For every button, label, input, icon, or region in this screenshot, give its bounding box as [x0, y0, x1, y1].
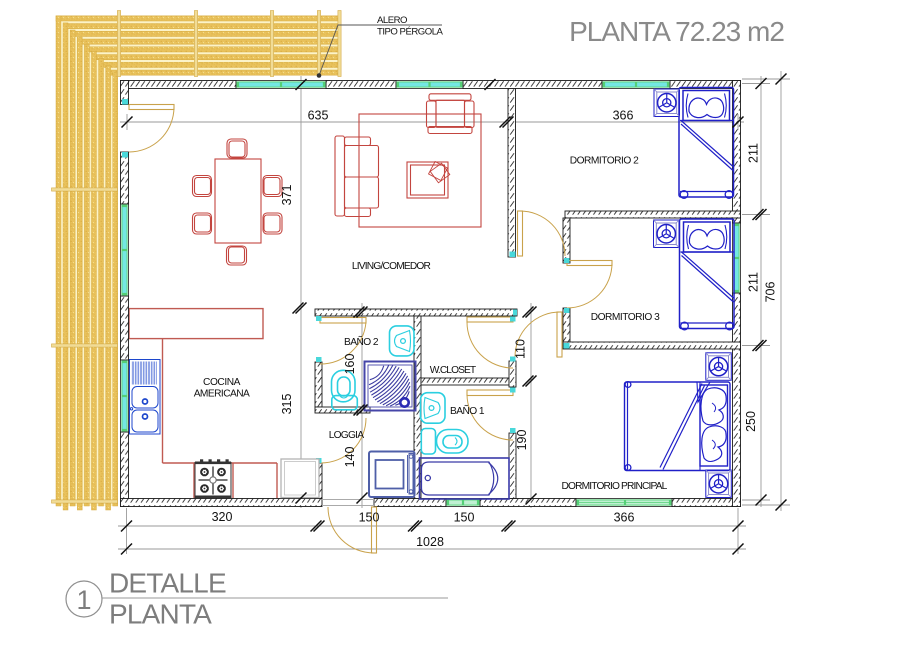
svg-text:LOGGIA: LOGGIA: [329, 430, 365, 441]
svg-text:150: 150: [454, 511, 475, 525]
svg-text:635: 635: [308, 109, 329, 123]
svg-text:706: 706: [764, 282, 778, 303]
svg-text:110: 110: [514, 339, 528, 359]
svg-text:250: 250: [744, 411, 758, 432]
svg-text:150: 150: [359, 511, 380, 525]
svg-text:366: 366: [614, 511, 635, 525]
svg-text:DETALLE: DETALLE: [109, 568, 226, 599]
svg-text:BAÑO 2: BAÑO 2: [344, 335, 379, 348]
svg-text:315: 315: [280, 394, 294, 415]
svg-text:320: 320: [212, 510, 233, 524]
svg-text:211: 211: [747, 143, 761, 163]
svg-text:COCINA: COCINA: [203, 377, 241, 388]
svg-text:ALERO: ALERO: [377, 15, 407, 26]
svg-text:BAÑO 1: BAÑO 1: [450, 404, 485, 417]
svg-text:DORMITORIO 2: DORMITORIO 2: [570, 156, 639, 167]
svg-text:160: 160: [343, 354, 357, 375]
svg-text:190: 190: [515, 430, 529, 451]
svg-text:211: 211: [747, 272, 761, 292]
svg-text:TIPO PÉRGOLA: TIPO PÉRGOLA: [377, 27, 444, 38]
svg-text:DORMITORIO PRINCIPAL: DORMITORIO PRINCIPAL: [562, 481, 668, 492]
svg-text:W.CLOSET: W.CLOSET: [430, 365, 476, 376]
svg-text:140: 140: [343, 447, 357, 468]
svg-text:DORMITORIO 3: DORMITORIO 3: [591, 312, 660, 323]
svg-text:1028: 1028: [416, 535, 444, 549]
svg-text:366: 366: [613, 109, 634, 123]
svg-text:PLANTA 72.23 m2: PLANTA 72.23 m2: [569, 16, 784, 47]
svg-text:1: 1: [76, 585, 91, 615]
svg-text:371: 371: [280, 185, 294, 206]
svg-text:AMERICANA: AMERICANA: [194, 389, 250, 400]
svg-text:PLANTA: PLANTA: [109, 599, 212, 630]
svg-text:LIVING/COMEDOR: LIVING/COMEDOR: [352, 261, 431, 272]
